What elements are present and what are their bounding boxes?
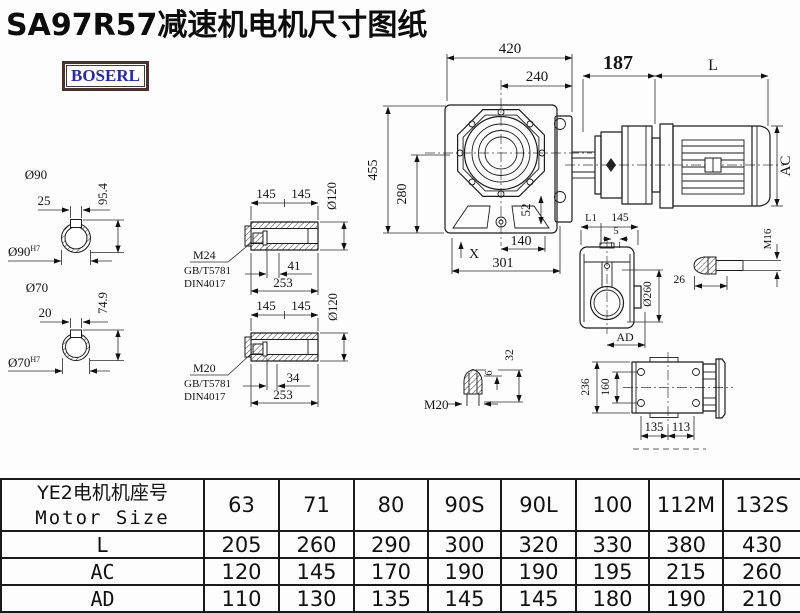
brand-logo: BOSERL — [62, 61, 149, 91]
brand-logo-text: BOSERL — [66, 65, 145, 87]
dim-280: 280 — [395, 184, 410, 205]
table-header-row: YE2电机机座号 Motor Size 63 71 80 90S 90L 100… — [1, 479, 800, 531]
col-112m: 112M — [649, 479, 723, 531]
shaft70-keyw: 20 — [39, 305, 52, 320]
cell-AD-90s: 145 — [428, 585, 501, 612]
cell-L-132s: 430 — [723, 531, 800, 558]
dim-301: 301 — [493, 256, 514, 271]
m24-len-left: 145 — [256, 186, 276, 201]
bottom-view: 160 236 135 113 — [580, 352, 733, 449]
bushing-m20-section: 145 145 Ø120 M20 GB/T5781 DIN4017 34 253 — [184, 293, 348, 407]
side-5: 5 — [613, 226, 618, 237]
shaft70-bore: Ø70H7 — [8, 355, 40, 370]
cell-AC-132s: 260 — [723, 558, 800, 585]
bolt-m16-detail: M16 26 — [674, 228, 782, 290]
m24-thread: M24 — [193, 248, 216, 262]
cell-AC-63: 120 — [204, 558, 279, 585]
mark-x: X — [469, 247, 479, 262]
m24-std-din: DIN4017 — [184, 278, 226, 290]
header-motor-size: YE2电机机座号 Motor Size — [1, 479, 204, 531]
bv-113: 113 — [672, 420, 690, 434]
cell-AD-90l: 145 — [501, 585, 576, 612]
gearbox-side-view: L1 145 5 Ø260 AD — [580, 212, 663, 348]
cell-AC-71: 145 — [279, 558, 354, 585]
m20s-thread: M20 — [424, 397, 449, 412]
col-90s: 90S — [428, 479, 501, 531]
table-row-AD: AD 110 130 135 145 145 180 190 210 — [1, 585, 800, 612]
cell-L-90l: 320 — [501, 531, 576, 558]
dim-420: 420 — [499, 41, 522, 57]
row-label-L: L — [1, 531, 204, 558]
shaft90-bore: Ø90H7 — [8, 244, 40, 259]
row-label-AD: AD — [1, 585, 204, 612]
drawing-sheet: SA97R57减速机电机尺寸图纸 BOSERL — [0, 0, 800, 613]
col-90l: 90L — [501, 479, 576, 531]
m24-bolt-len: 41 — [288, 258, 301, 273]
side-145: 145 — [611, 212, 629, 224]
header-motor-size-cn: YE2电机机座号 — [2, 481, 203, 506]
m20b-len-left: 145 — [256, 298, 276, 313]
shaft90-od: Ø90 — [25, 167, 47, 182]
cell-L-90s: 300 — [428, 531, 501, 558]
row-label-AC: AC — [1, 558, 204, 585]
dim-187: 187 — [603, 52, 633, 74]
gearbox-front-view — [425, 80, 784, 246]
cell-AD-100: 180 — [576, 585, 649, 612]
table-row-L: L 205 260 290 300 320 330 380 430 — [1, 531, 800, 558]
header-motor-size-en: Motor Size — [2, 506, 203, 530]
cell-AC-112m: 215 — [649, 558, 723, 585]
shaft90-keyw: 25 — [38, 193, 51, 208]
m24-total: 253 — [273, 275, 293, 290]
dim-52: 52 — [518, 204, 533, 217]
cell-AD-132s: 210 — [723, 585, 800, 612]
col-63: 63 — [204, 479, 279, 531]
cell-AD-71: 130 — [279, 585, 354, 612]
bv-236: 236 — [580, 378, 592, 396]
cell-L-100: 330 — [576, 531, 649, 558]
cell-AC-100: 195 — [576, 558, 649, 585]
m20b-len-right: 145 — [291, 298, 311, 313]
cell-AC-80: 170 — [354, 558, 428, 585]
side-od260: Ø260 — [642, 281, 654, 307]
motor — [660, 124, 770, 208]
m20b-total: 253 — [273, 387, 293, 402]
col-100: 100 — [576, 479, 649, 531]
side-l1: L1 — [585, 213, 597, 224]
col-71: 71 — [279, 479, 354, 531]
m24-len-right: 145 — [291, 186, 311, 201]
cell-AC-90l: 190 — [501, 558, 576, 585]
dim-L: L — [708, 57, 718, 74]
dim-140: 140 — [511, 234, 532, 249]
m16-thread: M16 — [762, 228, 774, 249]
front-view-dimensions: 420 240 187 L AC 455 280 52 X — [366, 41, 794, 274]
dim-240: 240 — [526, 69, 549, 85]
dim-AC: AC — [778, 156, 794, 177]
m20b-od: Ø120 — [326, 293, 340, 321]
cell-L-71: 260 — [279, 531, 354, 558]
m20b-thread: M20 — [193, 361, 216, 375]
bv-160: 160 — [600, 378, 612, 396]
col-132s: 132S — [723, 479, 800, 531]
shaft-section-90: Ø90 25 95.4 Ø90H7 — [8, 167, 124, 265]
cell-AD-112m: 190 — [649, 585, 723, 612]
m20b-bolt-len: 34 — [287, 370, 301, 385]
shaft90-keyh: 95.4 — [96, 182, 110, 205]
cell-AD-63: 110 — [204, 585, 279, 612]
cell-L-63: 205 — [204, 531, 279, 558]
cell-AD-80: 135 — [354, 585, 428, 612]
stud-m20-detail: M20 6 32 — [424, 349, 523, 412]
m24-od: Ø120 — [325, 182, 339, 210]
m16-len26: 26 — [674, 274, 686, 286]
table-row-AC: AC 120 145 170 190 190 195 215 260 — [1, 558, 800, 585]
m24-std-gb: GB/T5781 — [184, 265, 231, 277]
bv-135: 135 — [645, 420, 664, 434]
bushing-m24-section: 145 145 Ø120 M24 GB/T5781 DIN4017 41 253 — [184, 182, 348, 295]
m20b-std-din: DIN4017 — [184, 391, 226, 403]
m20s-len32: 32 — [504, 349, 516, 361]
shaft-section-70: Ø70 20 74.9 Ø70H7 — [8, 280, 124, 374]
shaft70-od: Ø70 — [26, 280, 48, 295]
cell-L-80: 290 — [354, 531, 428, 558]
cell-L-112m: 380 — [649, 531, 723, 558]
side-ad: AD — [616, 330, 634, 344]
dim-455: 455 — [366, 160, 381, 181]
shaft70-keyh: 74.9 — [96, 292, 110, 314]
m20s-tip: 6 — [484, 370, 495, 375]
motor-dimension-table: YE2电机机座号 Motor Size 63 71 80 90S 90L 100… — [0, 478, 800, 613]
page-title: SA97R57减速机电机尺寸图纸 — [6, 0, 427, 44]
m20b-std-gb: GB/T5781 — [184, 378, 231, 390]
col-80: 80 — [354, 479, 428, 531]
cell-AC-90s: 190 — [428, 558, 501, 585]
